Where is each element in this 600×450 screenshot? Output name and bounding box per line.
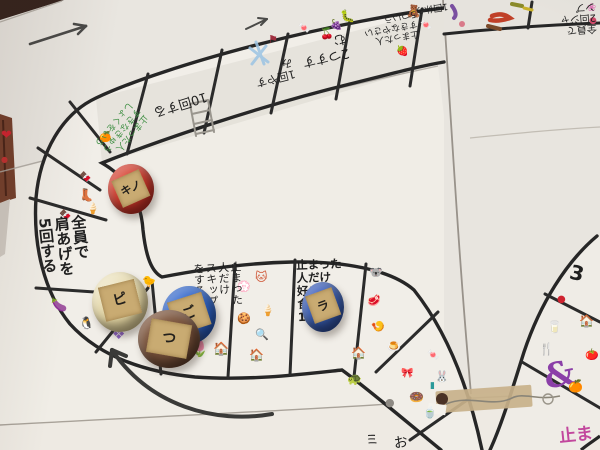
- blue-cap-right: ラ: [302, 282, 344, 332]
- cat-sticker: 🐱: [255, 271, 268, 283]
- flag-sticker: ⚑: [268, 34, 278, 45]
- candy-sticker-3: 🍬: [427, 351, 439, 361]
- house-sticker-yellow: 🏠: [579, 315, 594, 327]
- teacup-sticker: 🍵: [423, 407, 437, 418]
- milk-carton-sticker: 🥛: [547, 321, 562, 333]
- chocolate-sticker: 🍫: [79, 173, 91, 183]
- ice-cream-sticker: 🍦: [261, 305, 275, 316]
- house-sticker-pink: 🏠: [249, 349, 264, 361]
- turtle-sticker: 🐢: [347, 373, 362, 385]
- blue-cap-right-tape: ラ: [305, 287, 341, 324]
- red-cap-tape: キノ: [111, 169, 151, 208]
- bow-sticker: 🎀: [401, 369, 413, 379]
- heart-sticker: ❤: [1, 129, 12, 142]
- candy-sticker-2: 🍬: [420, 21, 432, 31]
- mirror-sticker: 🔍: [255, 329, 269, 340]
- square-text-all-jump-twice: 全員で 2回ジャ ンプ: [533, 0, 597, 38]
- marker-sticker: ▮: [430, 382, 435, 391]
- popsicle-sticker: 🍦: [86, 203, 100, 214]
- pudding-sticker: 🍮: [387, 341, 401, 352]
- red-bit-sticker: ●: [1, 156, 8, 164]
- piece-label: ラ: [315, 298, 330, 313]
- piece-label: キノ: [119, 179, 143, 198]
- board-game-photo: ❤🍒⚑🍬🐛🍇🧸🍬🍓🍊🍫👢🍦🍫🍆🐧🐤❖🌷🐱💮🍦🍪🔍🏠🏠🐨🥩🍤🍮🏠🐢🎀🍬🐰▮●🍩🍵●…: [0, 0, 600, 450]
- bird-sticker: 🐤: [142, 276, 156, 287]
- red-cap: キノ: [108, 164, 154, 214]
- fried-food-sticker: 🍤: [371, 321, 385, 332]
- brown-cap: つ: [138, 310, 200, 368]
- piece-label: ピ: [112, 292, 129, 309]
- penguin-sticker: 🐧: [79, 317, 94, 329]
- red-dot-sticker: ●: [557, 295, 566, 305]
- grapes-sticker: 🍇: [330, 21, 342, 31]
- cream-cap: ピ: [92, 272, 148, 332]
- strawberry-sticker: 🍓: [396, 47, 408, 57]
- tomato-sticker: 🍅: [585, 349, 599, 360]
- candy-sticker: 🍬: [298, 24, 310, 34]
- square-text-shoulder-raise: 全員で 肩あげを 5回する: [35, 214, 95, 311]
- square-text-bottom-partial-b: お: [393, 435, 409, 450]
- koala-sticker: 🐨: [369, 267, 383, 278]
- stone-sticker: ●: [385, 397, 395, 408]
- rabbit-sticker: 🐰: [435, 371, 449, 382]
- piece-label: つ: [161, 330, 177, 346]
- square-text-pink-partial: 止まっ: [558, 424, 600, 450]
- brown-cap-tape: つ: [146, 318, 192, 358]
- boot-sticker: 👢: [79, 189, 94, 201]
- orange-sticker: 🍊: [568, 380, 583, 392]
- meat-sticker: 🥩: [367, 295, 381, 306]
- donut-sticker: 🍩: [409, 391, 424, 403]
- cream-cap-tape: ピ: [98, 279, 142, 322]
- house-sticker-red2: 🏠: [351, 347, 366, 359]
- fork-sticker: 🍴: [539, 343, 554, 355]
